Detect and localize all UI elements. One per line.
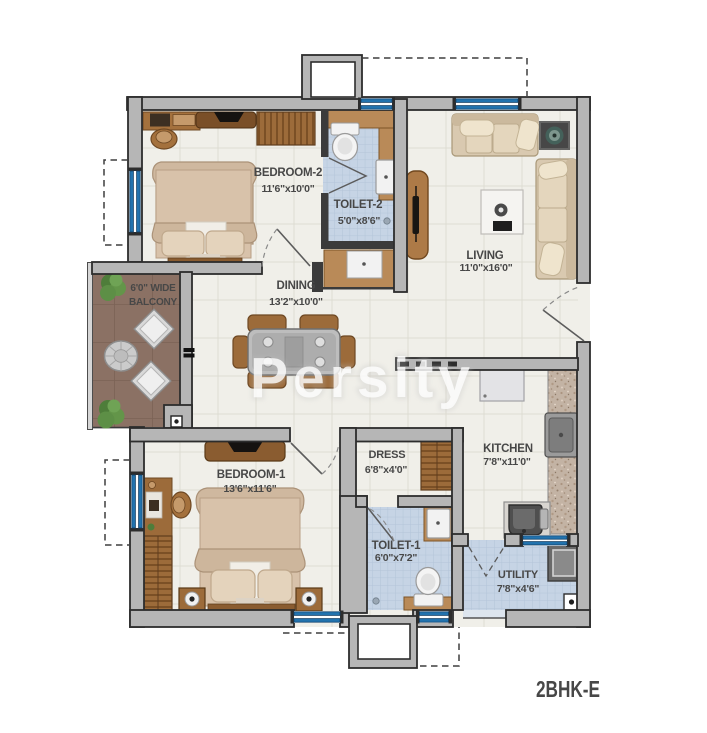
svg-text:DRESS: DRESS — [369, 449, 406, 461]
svg-text:6'8"x4'0": 6'8"x4'0" — [365, 464, 408, 476]
svg-text:7'8"x11'0": 7'8"x11'0" — [483, 456, 531, 468]
svg-text:11'6"x10'0": 11'6"x10'0" — [261, 183, 314, 195]
svg-text:7'8"x4'6": 7'8"x4'6" — [497, 583, 540, 595]
svg-text:5'0"x8'6": 5'0"x8'6" — [338, 215, 381, 227]
svg-text:BEDROOM-1: BEDROOM-1 — [217, 469, 286, 481]
svg-text:BALCONY: BALCONY — [129, 297, 178, 308]
svg-text:LIVING: LIVING — [466, 250, 503, 262]
svg-text:TOILET-2: TOILET-2 — [334, 199, 383, 211]
svg-text:13'6"x11'6": 13'6"x11'6" — [223, 483, 276, 495]
svg-text:13'2"x10'0": 13'2"x10'0" — [269, 296, 323, 308]
svg-text:TOILET-1: TOILET-1 — [372, 540, 421, 552]
svg-text:6'0" WIDE: 6'0" WIDE — [130, 283, 176, 294]
svg-text:2BHK-E: 2BHK-E — [536, 676, 600, 702]
svg-text:6'0"x7'2": 6'0"x7'2" — [375, 552, 418, 564]
svg-text:KITCHEN: KITCHEN — [483, 443, 533, 455]
svg-text:BEDROOM-2: BEDROOM-2 — [254, 167, 322, 179]
svg-text:DINING: DINING — [276, 280, 315, 292]
svg-text:11'0"x16'0": 11'0"x16'0" — [459, 262, 512, 274]
svg-text:UTILITY: UTILITY — [498, 569, 539, 581]
